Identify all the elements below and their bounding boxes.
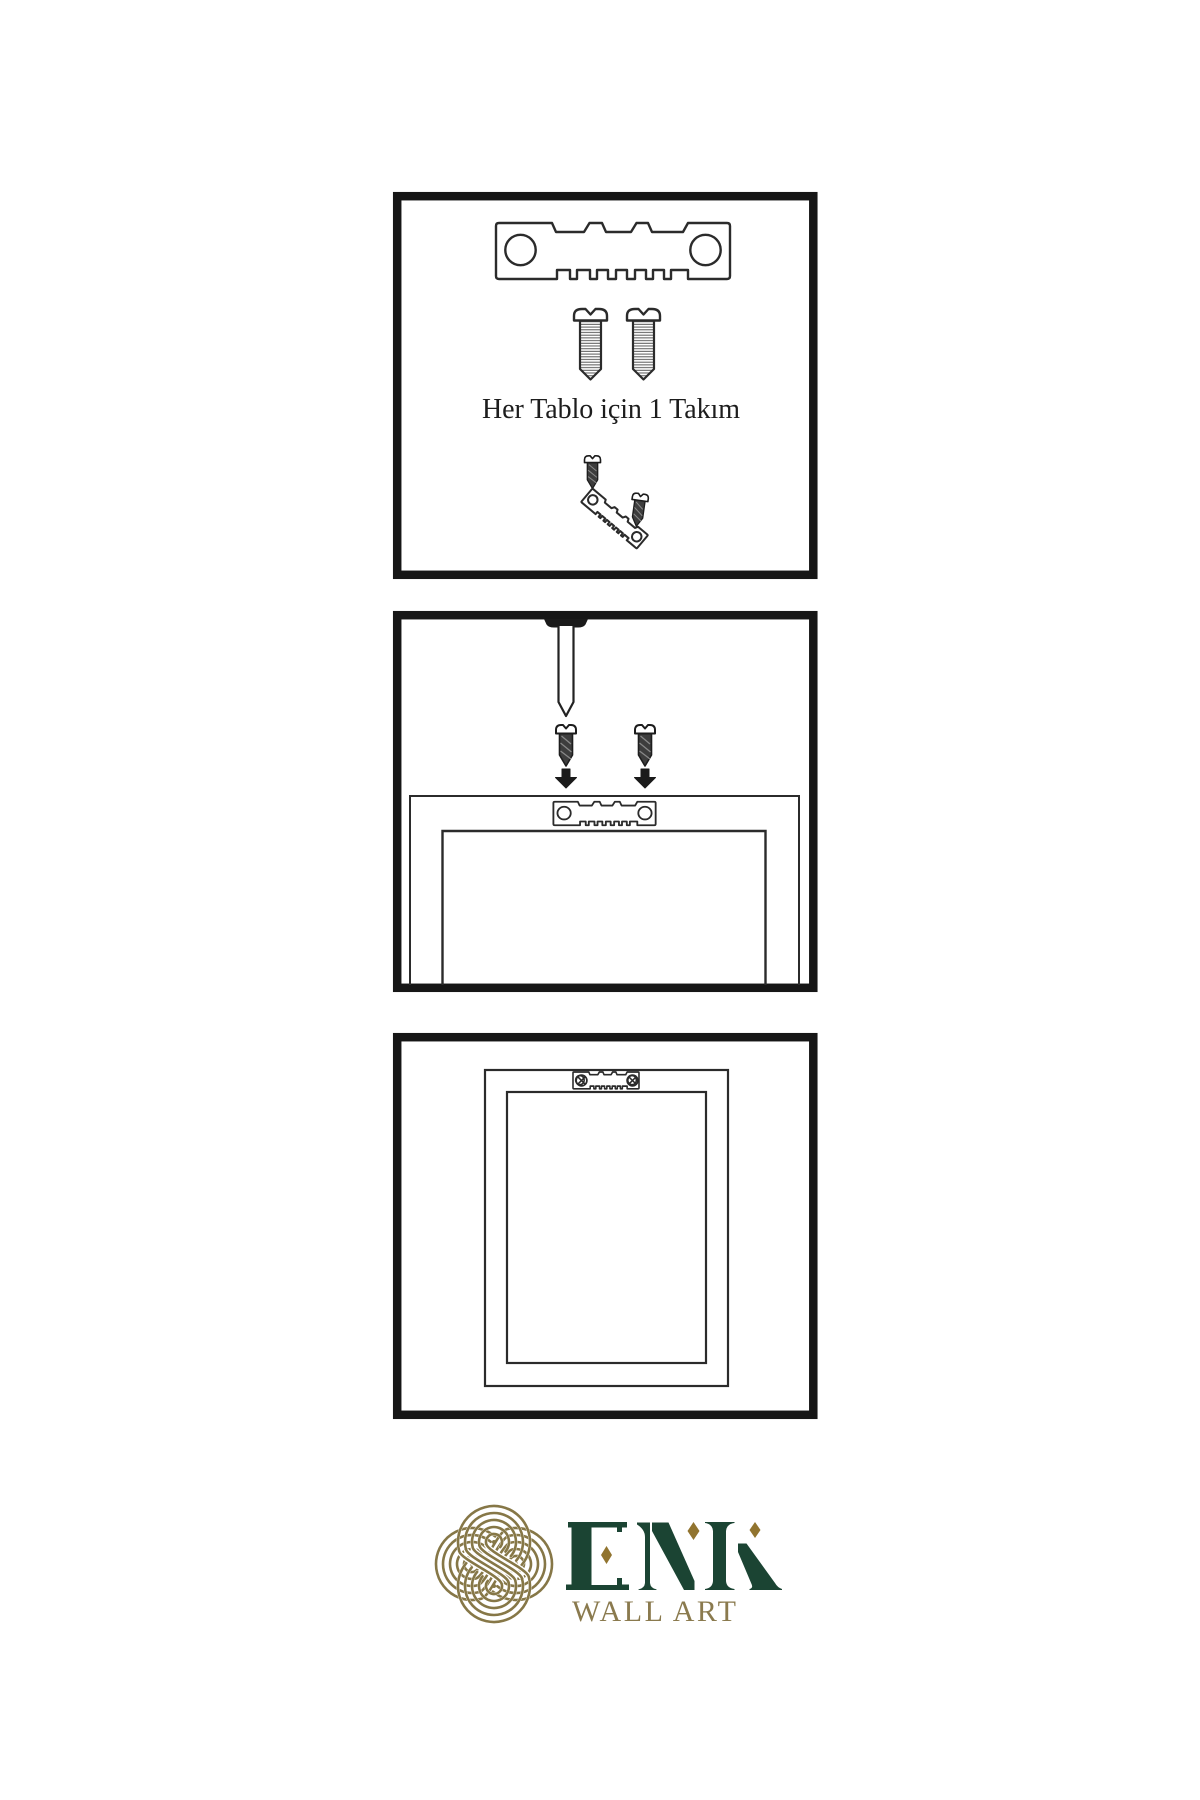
svg-text:WALL ART: WALL ART [572, 1595, 738, 1628]
svg-text:Her Tablo için 1 Takım: Her Tablo için 1 Takım [482, 394, 740, 425]
